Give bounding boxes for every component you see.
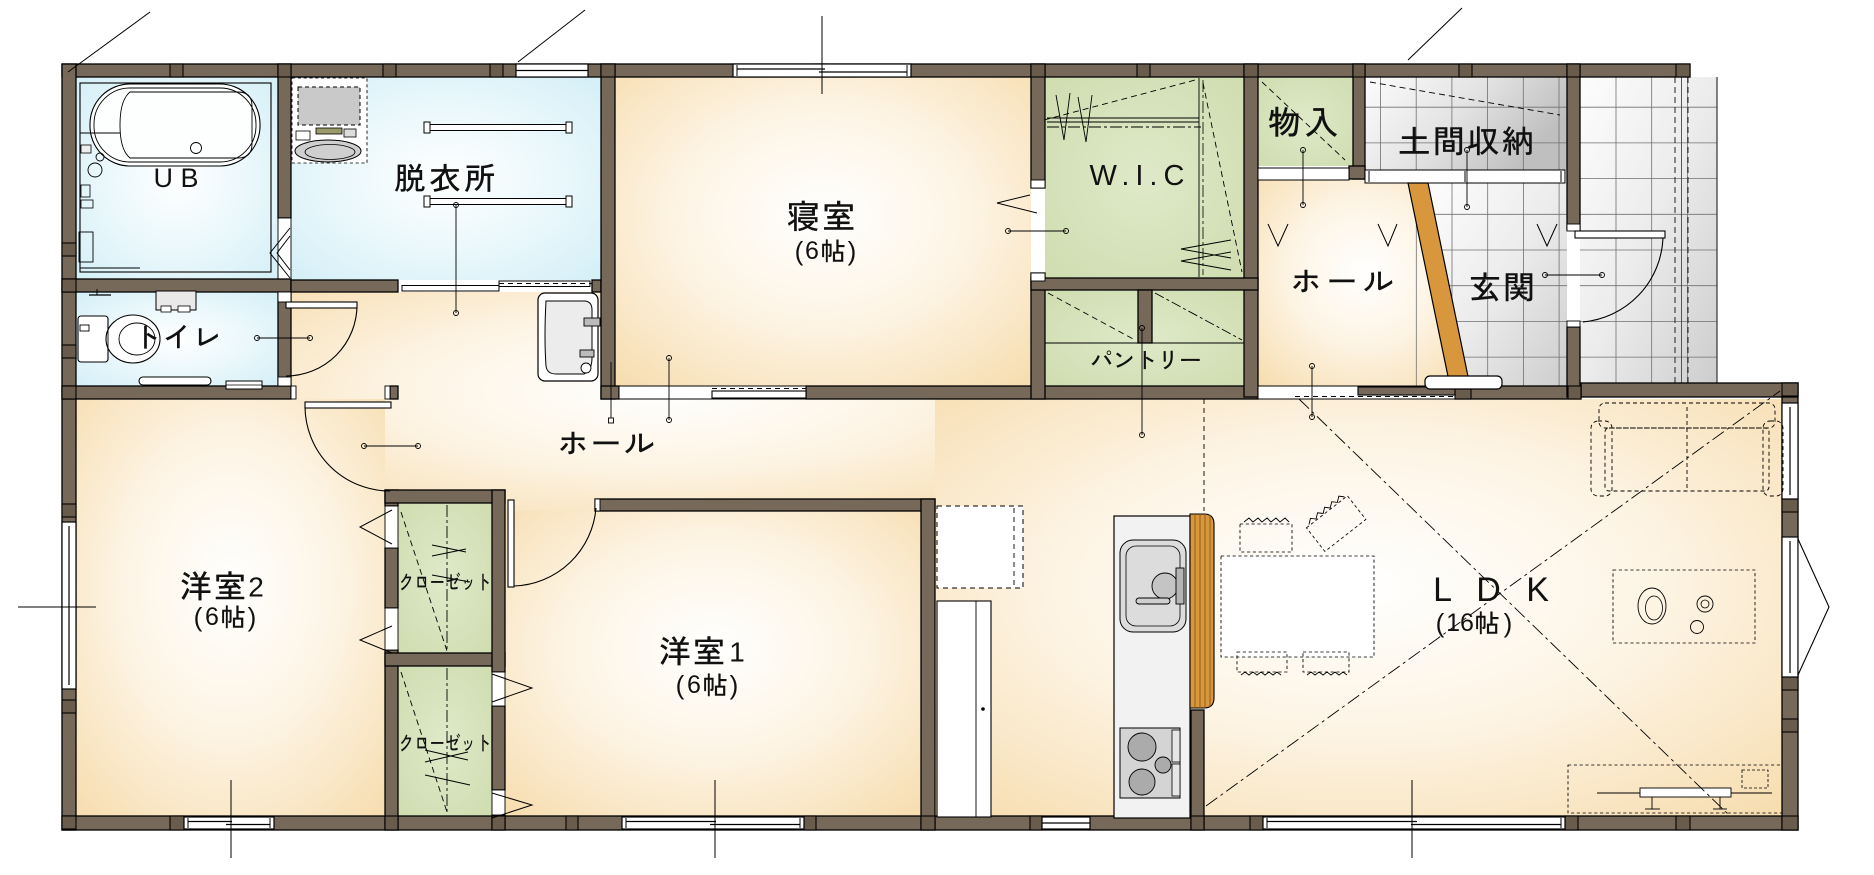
svg-text:(: ( <box>194 602 203 632</box>
svg-text:(: ( <box>1436 608 1445 638</box>
svg-text:L D K: L D K <box>1433 571 1557 609</box>
svg-text:6: 6 <box>205 603 219 631</box>
svg-text:(: ( <box>795 236 804 266</box>
svg-text:U B: U B <box>153 163 198 193</box>
svg-text:): ) <box>1504 608 1513 638</box>
svg-text:2: 2 <box>248 572 264 603</box>
svg-text:6: 6 <box>805 237 819 265</box>
svg-text:): ) <box>730 670 739 700</box>
svg-text:(: ( <box>676 670 685 700</box>
svg-text:16: 16 <box>1446 609 1474 637</box>
svg-text:): ) <box>248 602 257 632</box>
svg-text:6: 6 <box>687 671 701 699</box>
svg-text:W.I.C: W.I.C <box>1090 160 1191 192</box>
svg-text:1: 1 <box>729 637 745 668</box>
svg-text:): ) <box>848 236 857 266</box>
